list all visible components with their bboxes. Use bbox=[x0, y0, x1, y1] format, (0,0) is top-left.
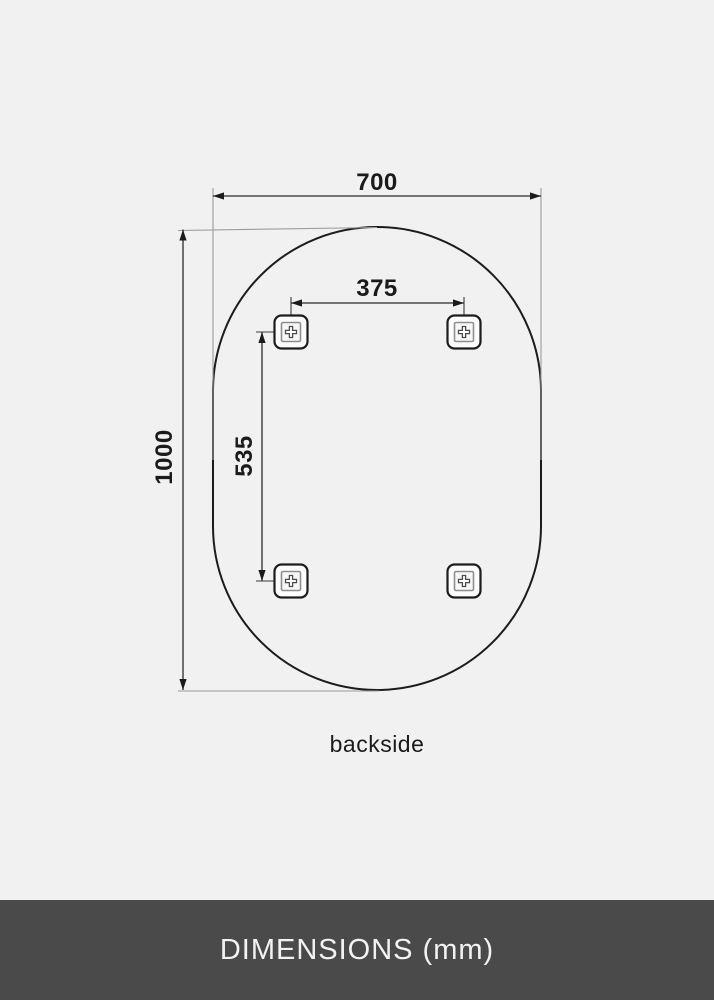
arrowhead-right-icon bbox=[453, 299, 464, 306]
arrowhead-down-icon bbox=[179, 679, 186, 690]
dimension-bracket-horizontal: 375 bbox=[291, 275, 464, 316]
dimension-width: 700 bbox=[213, 169, 541, 200]
arrowhead-down-icon bbox=[258, 570, 265, 581]
arrowhead-left-icon bbox=[291, 299, 302, 306]
bracket-horizontal-spacing-label: 375 bbox=[356, 275, 398, 302]
arrowhead-right-icon bbox=[530, 192, 541, 199]
footer-title: DIMENSIONS (mm) bbox=[220, 934, 494, 967]
height-dimension-label: 1000 bbox=[151, 429, 178, 484]
dimension-bracket-vertical: 535 bbox=[231, 332, 275, 581]
bracket-vertical-spacing-label: 535 bbox=[231, 435, 258, 477]
mount-bracket-top-right bbox=[448, 316, 481, 349]
arrowhead-left-icon bbox=[213, 192, 224, 199]
dimension-height: 1000 bbox=[151, 230, 187, 691]
mount-bracket-bottom-right bbox=[448, 565, 481, 598]
mount-bracket-top-left bbox=[275, 316, 308, 349]
width-dimension-label: 700 bbox=[356, 169, 398, 196]
diagram-canvas: 700 1000 375 535 bbox=[0, 0, 714, 900]
mount-bracket-bottom-left bbox=[275, 565, 308, 598]
arrowhead-up-icon bbox=[258, 332, 265, 343]
view-label: backside bbox=[330, 731, 425, 757]
footer-bar: DIMENSIONS (mm) bbox=[0, 900, 714, 1000]
arrowhead-up-icon bbox=[179, 230, 186, 241]
dimension-diagram: 700 1000 375 535 bbox=[0, 0, 714, 900]
